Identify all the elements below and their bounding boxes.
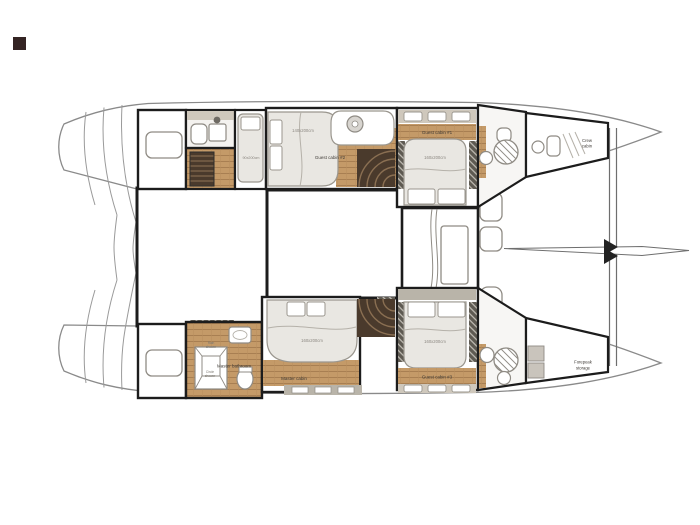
master-bed-size: 160x200cm [301, 338, 323, 343]
pillow [287, 302, 305, 316]
pillow [438, 189, 465, 204]
guest-bathroom-fwd-bottom [478, 288, 526, 390]
pillow [270, 146, 282, 170]
crew-cabin-label-1: Crew [582, 138, 593, 143]
guest-cabin-2-bed-size: 140x200cm [292, 128, 314, 133]
pillow [307, 302, 325, 316]
wardrobe [469, 302, 477, 362]
deck-hatch [146, 132, 182, 158]
page-artifact [13, 37, 26, 50]
sink [532, 141, 544, 153]
aft-cockpit [137, 188, 267, 326]
catamaran-floorplan: 140x200cm Guest cabin #2 90x200cm Guest … [0, 0, 700, 525]
forepeak-storage [526, 318, 608, 383]
stairs-fan-bottom [357, 299, 395, 337]
master-bathroom-label: Master bathroom [217, 364, 251, 369]
stairs-fan-top [357, 149, 395, 187]
pillow [270, 120, 282, 144]
master-cabin [262, 297, 362, 395]
aft-deck-room-bottom [138, 324, 186, 398]
faucet [214, 117, 221, 124]
toilet [191, 124, 207, 144]
guest-cabin-2-label: Guest cabin #2 [315, 155, 346, 160]
pillow [438, 302, 465, 317]
shower [494, 348, 518, 372]
stairs [190, 152, 214, 186]
sink [229, 327, 251, 343]
forepeak-label-1: Forepeak [574, 360, 593, 365]
sink [209, 124, 226, 141]
guest-cabin-1-label: Guest cabin #1 [422, 130, 453, 135]
circle-shower-label-2: shower [205, 374, 216, 378]
shower [494, 140, 518, 164]
rain-shower-label-2: shower [206, 345, 217, 349]
crew-cabin-label-2: cabin [582, 144, 593, 149]
companionway-aft [186, 148, 235, 189]
crew-berth-cabin [235, 110, 266, 189]
locker [528, 363, 544, 378]
guest-cabin-1-bed-size: 160x200cm [424, 155, 446, 160]
floorplan-page: 140x200cm Guest cabin #2 90x200cm Guest … [0, 0, 700, 525]
deck-hatch [146, 350, 182, 376]
crew-berth-bed-size: 90x200cm [242, 156, 259, 160]
pillow [241, 117, 260, 130]
master-bathroom [186, 322, 262, 398]
crew-cabin [526, 113, 608, 177]
guest-bathroom-aft [186, 110, 235, 148]
salon [267, 190, 404, 298]
locker [528, 346, 544, 361]
sink [480, 152, 493, 165]
forepeak-label-2: storage [576, 366, 591, 371]
aft-deck-room-top [138, 110, 186, 189]
guest-cabin-3-bed-size: 160x200cm [424, 339, 446, 344]
master-cabin-label: Master cabin [281, 376, 307, 381]
guest-bathroom-fwd-top [478, 105, 526, 207]
toilet [480, 348, 494, 363]
wardrobe [469, 141, 477, 189]
sink [498, 372, 511, 385]
pillow [408, 302, 435, 317]
crew-seat [547, 136, 560, 156]
bowsprit [504, 247, 689, 256]
cockpit-table [441, 226, 468, 284]
guest-cabin-3-label: Guest cabin #3 [422, 375, 453, 380]
pillow [408, 189, 435, 204]
